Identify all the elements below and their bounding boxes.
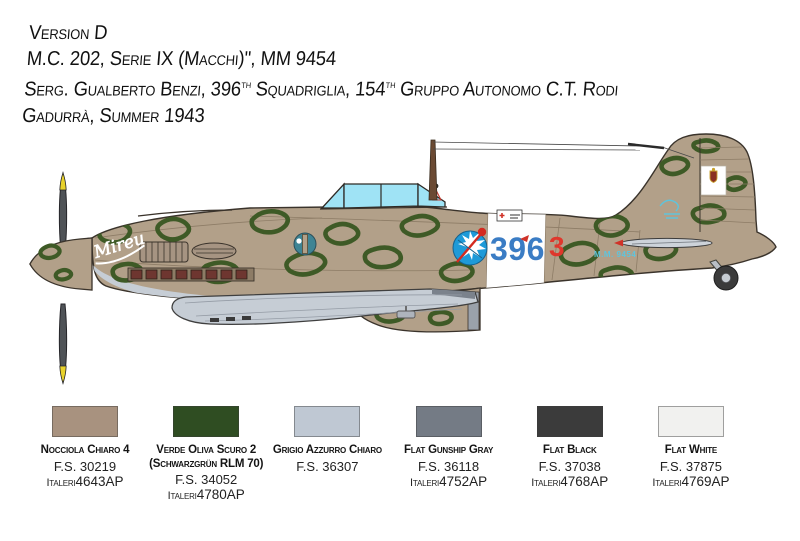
paint-col-gunship-gray: Flat Gunship Gray F.S. 36118 Italeri4752… [390,406,508,504]
exhaust-stubs [128,268,254,281]
aircraft-profile-illustration: Mireu [0,120,800,420]
paint-fs: F.S. 37875 [632,459,750,474]
paint-alt-name: (Schwarzgrün RLM 70) [147,458,265,472]
paint-col-nocciola: Nocciola Chiaro 4 F.S. 30219 Italeri4643… [26,406,144,504]
paint-col-flat-white: Flat White F.S. 37875 Italeri4769AP [632,406,750,504]
paint-col-grigio: Grigio Azzurro Chiaro F.S. 36307 [268,406,386,504]
spinner [30,238,92,290]
canopy [320,184,447,209]
paint-fs: F.S. 36118 [390,459,508,474]
first-aid-stencil [497,210,522,221]
scheme-header: Version D M.C. 202, Serie IX (Macchi)", … [21,20,711,129]
serial-text: M.M. 9454 [594,250,636,259]
paint-code: Italeri4780AP [147,487,265,504]
paint-chart: Nocciola Chiaro 4 F.S. 30219 Italeri4643… [26,406,750,504]
paint-code: Italeri4643AP [26,474,144,491]
paint-code: Italeri4768AP [511,474,629,491]
aircraft-designation: M.C. 202, Serie IX (Macchi)", MM 9454 [26,46,709,72]
antenna-wires [433,142,694,158]
paint-code: Italeri4769AP [632,474,750,491]
paint-name: Flat Gunship Gray [390,444,508,458]
paint-code: Italeri4752AP [390,474,508,491]
supercharger-intake [192,243,236,259]
paint-swatch [658,406,724,437]
paint-fs: F.S. 36307 [268,459,386,474]
paint-col-flat-black: Flat Black F.S. 37038 Italeri4768AP [511,406,629,504]
paint-name: Verde Oliva Scuro 2 [147,444,265,458]
pilot-unit-line: Serg. Gualberto Benzi, 396th Squadriglia… [23,72,706,103]
propeller-tip-upper [60,173,66,190]
paint-swatch [416,406,482,437]
version-title: Version D [28,20,711,46]
paint-name: Grigio Azzurro Chiaro [268,444,386,458]
paint-swatch [52,406,118,437]
paint-swatch [537,406,603,437]
paint-fs: F.S. 37038 [511,459,629,474]
paint-name: Flat Black [511,444,629,458]
propeller-tip-lower [60,366,66,383]
paint-swatch [173,406,239,437]
paint-col-verde: Verde Oliva Scuro 2 (Schwarzgrün RLM 70)… [147,406,265,504]
instruction-sheet: Version D M.C. 202, Serie IX (Macchi)", … [0,0,800,541]
paint-name: Nocciola Chiaro 4 [26,444,144,458]
paint-fs: F.S. 34052 [147,472,265,487]
paint-name: Flat White [632,444,750,458]
individual-number-text: 3 [549,231,565,262]
fascio-roundel [294,233,316,255]
paint-fs: F.S. 30219 [26,459,144,474]
band-number-text: 396 [490,231,545,267]
paint-swatch [294,406,360,437]
